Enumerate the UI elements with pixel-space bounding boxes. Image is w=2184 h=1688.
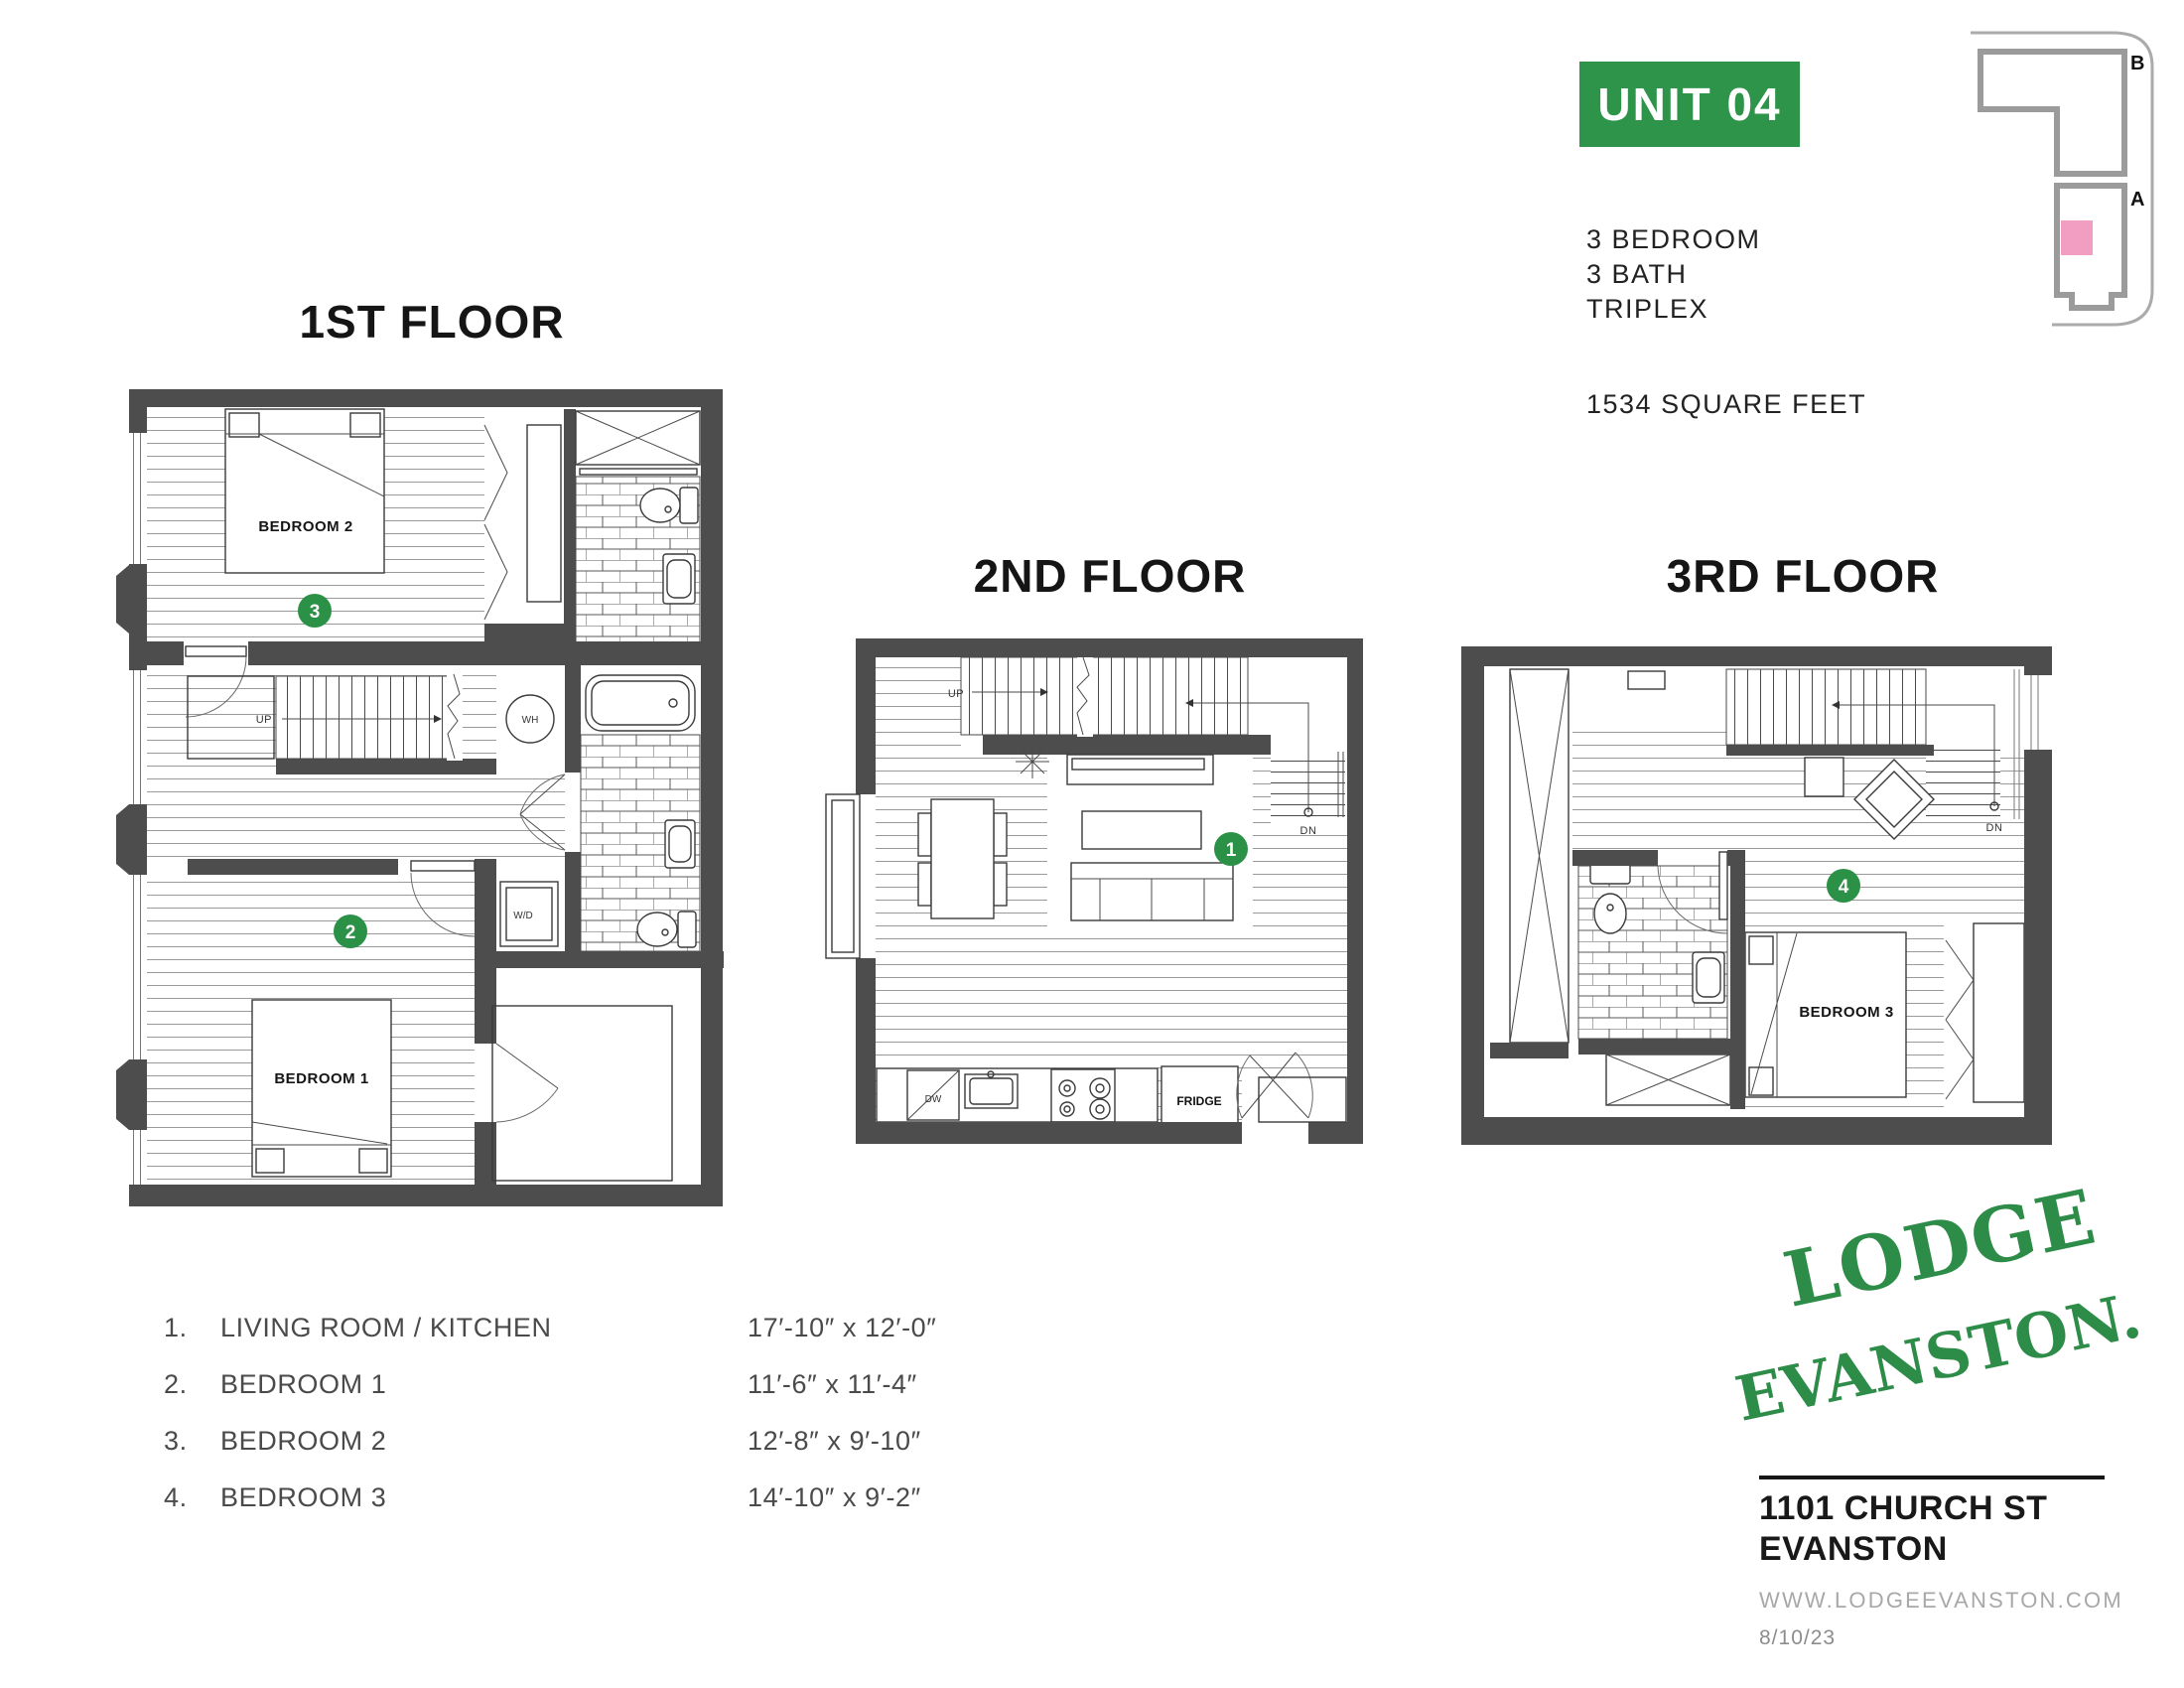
sink bbox=[663, 554, 695, 604]
dn-label: DN bbox=[1986, 822, 2003, 834]
dw-label: DW bbox=[925, 1094, 942, 1105]
legend-number: 1. bbox=[164, 1313, 188, 1343]
side-table bbox=[1805, 758, 1843, 796]
legend-number: 3. bbox=[164, 1426, 188, 1457]
section-b-label: B bbox=[2130, 53, 2144, 74]
sink bbox=[1693, 952, 1724, 1003]
legend-dimensions: 12′-8″ x 9′-10″ bbox=[748, 1426, 921, 1457]
shower bbox=[1606, 1055, 1730, 1105]
floor1-title: 1ST FLOOR bbox=[223, 295, 640, 349]
bedroom2-label: BEDROOM 2 bbox=[258, 518, 352, 535]
svg-text:2: 2 bbox=[345, 922, 356, 943]
bay-window bbox=[826, 794, 860, 958]
fridge-label: FRIDGE bbox=[1176, 1094, 1221, 1108]
room-marker-2: 2 bbox=[334, 914, 367, 948]
divider-rule bbox=[1759, 1476, 2105, 1479]
floor3-plan: DN bbox=[1457, 635, 2053, 1152]
closet-zone bbox=[1944, 918, 2024, 1109]
room-marker-1: 1 bbox=[1214, 832, 1248, 866]
floorplan-sheet: 1ST FLOOR 2ND FLOOR 3RD FLOOR bbox=[0, 0, 2184, 1688]
date-label: 8/10/23 bbox=[1759, 1626, 1836, 1650]
unit-area: 1534 SQUARE FEET bbox=[1586, 389, 1866, 420]
legend-row: 3. BEDROOM 2 12′-8″ x 9′-10″ bbox=[154, 1426, 1147, 1482]
toilet bbox=[640, 488, 698, 523]
toilet bbox=[637, 912, 696, 947]
building-key-map: B A bbox=[1966, 22, 2164, 338]
address-line2: EVANSTON bbox=[1759, 1530, 1948, 1569]
floor1-plan: UP WH W/D bbox=[113, 385, 725, 1209]
up-label: UP bbox=[256, 714, 272, 726]
floor2-title: 2ND FLOOR bbox=[901, 549, 1318, 603]
legend-label: BEDROOM 2 bbox=[220, 1426, 386, 1457]
legend-row: 1. LIVING ROOM / KITCHEN 17′-10″ x 12′-0… bbox=[154, 1313, 1147, 1369]
unit-info: 3 BEDROOM 3 BATH TRIPLEX bbox=[1586, 222, 1761, 327]
bedroom1-label: BEDROOM 1 bbox=[274, 1070, 368, 1087]
light-fixture-icon bbox=[1016, 745, 1049, 778]
shower bbox=[576, 411, 700, 475]
storage-room bbox=[492, 1006, 672, 1181]
legend-label: BEDROOM 1 bbox=[220, 1369, 386, 1400]
unit-location-highlight bbox=[2061, 220, 2093, 255]
coffee-table bbox=[1082, 811, 1201, 849]
svg-text:4: 4 bbox=[1839, 877, 1849, 898]
legend-dimensions: 14′-10″ x 9′-2″ bbox=[748, 1482, 921, 1513]
floor2-plan: UP DN bbox=[821, 635, 1367, 1147]
dn-label: DN bbox=[1300, 825, 1317, 837]
sink bbox=[665, 820, 695, 868]
lodge-evanston-logo: LODGE EVANSTON. bbox=[1729, 1180, 2156, 1468]
unit-type: TRIPLEX bbox=[1586, 292, 1761, 327]
dining-table bbox=[918, 799, 1007, 918]
svg-text:3: 3 bbox=[310, 602, 321, 623]
bedroom3-label: BEDROOM 3 bbox=[1799, 1004, 1893, 1021]
legend-label: LIVING ROOM / KITCHEN bbox=[220, 1313, 552, 1343]
legend-number: 2. bbox=[164, 1369, 188, 1400]
svg-text:1: 1 bbox=[1226, 840, 1237, 861]
floor3-title: 3RD FLOOR bbox=[1594, 549, 2011, 603]
legend-dimensions: 11′-6″ x 11′-4″ bbox=[748, 1369, 917, 1400]
website-url: WWW.LODGEEVANSTON.COM bbox=[1759, 1588, 2123, 1614]
sofa bbox=[1071, 863, 1233, 920]
unit-baths: 3 BATH bbox=[1586, 257, 1761, 292]
legend-row: 2. BEDROOM 1 11′-6″ x 11′-4″ bbox=[154, 1369, 1147, 1426]
up-label: UP bbox=[948, 688, 964, 700]
room-marker-4: 4 bbox=[1827, 869, 1860, 903]
bathtub bbox=[586, 675, 695, 731]
window bbox=[1628, 671, 1665, 689]
bed bbox=[252, 1000, 391, 1177]
wd-label: W/D bbox=[513, 911, 532, 921]
legend-label: BEDROOM 3 bbox=[220, 1482, 386, 1513]
room-legend: 1. LIVING ROOM / KITCHEN 17′-10″ x 12′-0… bbox=[154, 1313, 1147, 1539]
building-b-outline bbox=[1980, 52, 2124, 174]
section-a-label: A bbox=[2130, 189, 2144, 211]
tv-console bbox=[1067, 755, 1213, 784]
legend-number: 4. bbox=[164, 1482, 188, 1513]
legend-dimensions: 17′-10″ x 12′-0″ bbox=[748, 1313, 936, 1343]
closet bbox=[484, 425, 561, 620]
wh-label: WH bbox=[522, 715, 539, 726]
tall-closet bbox=[1510, 669, 1569, 1043]
unit-badge: UNIT 04 bbox=[1579, 62, 1800, 147]
door bbox=[496, 1044, 558, 1122]
unit-bedrooms: 3 BEDROOM bbox=[1586, 222, 1761, 257]
room-marker-3: 3 bbox=[298, 594, 332, 628]
bed bbox=[225, 409, 384, 573]
legend-row: 4. BEDROOM 3 14′-10″ x 9′-2″ bbox=[154, 1482, 1147, 1539]
address-line1: 1101 CHURCH ST bbox=[1759, 1489, 2047, 1528]
window bbox=[2024, 675, 2052, 750]
window-bay bbox=[116, 565, 129, 1130]
